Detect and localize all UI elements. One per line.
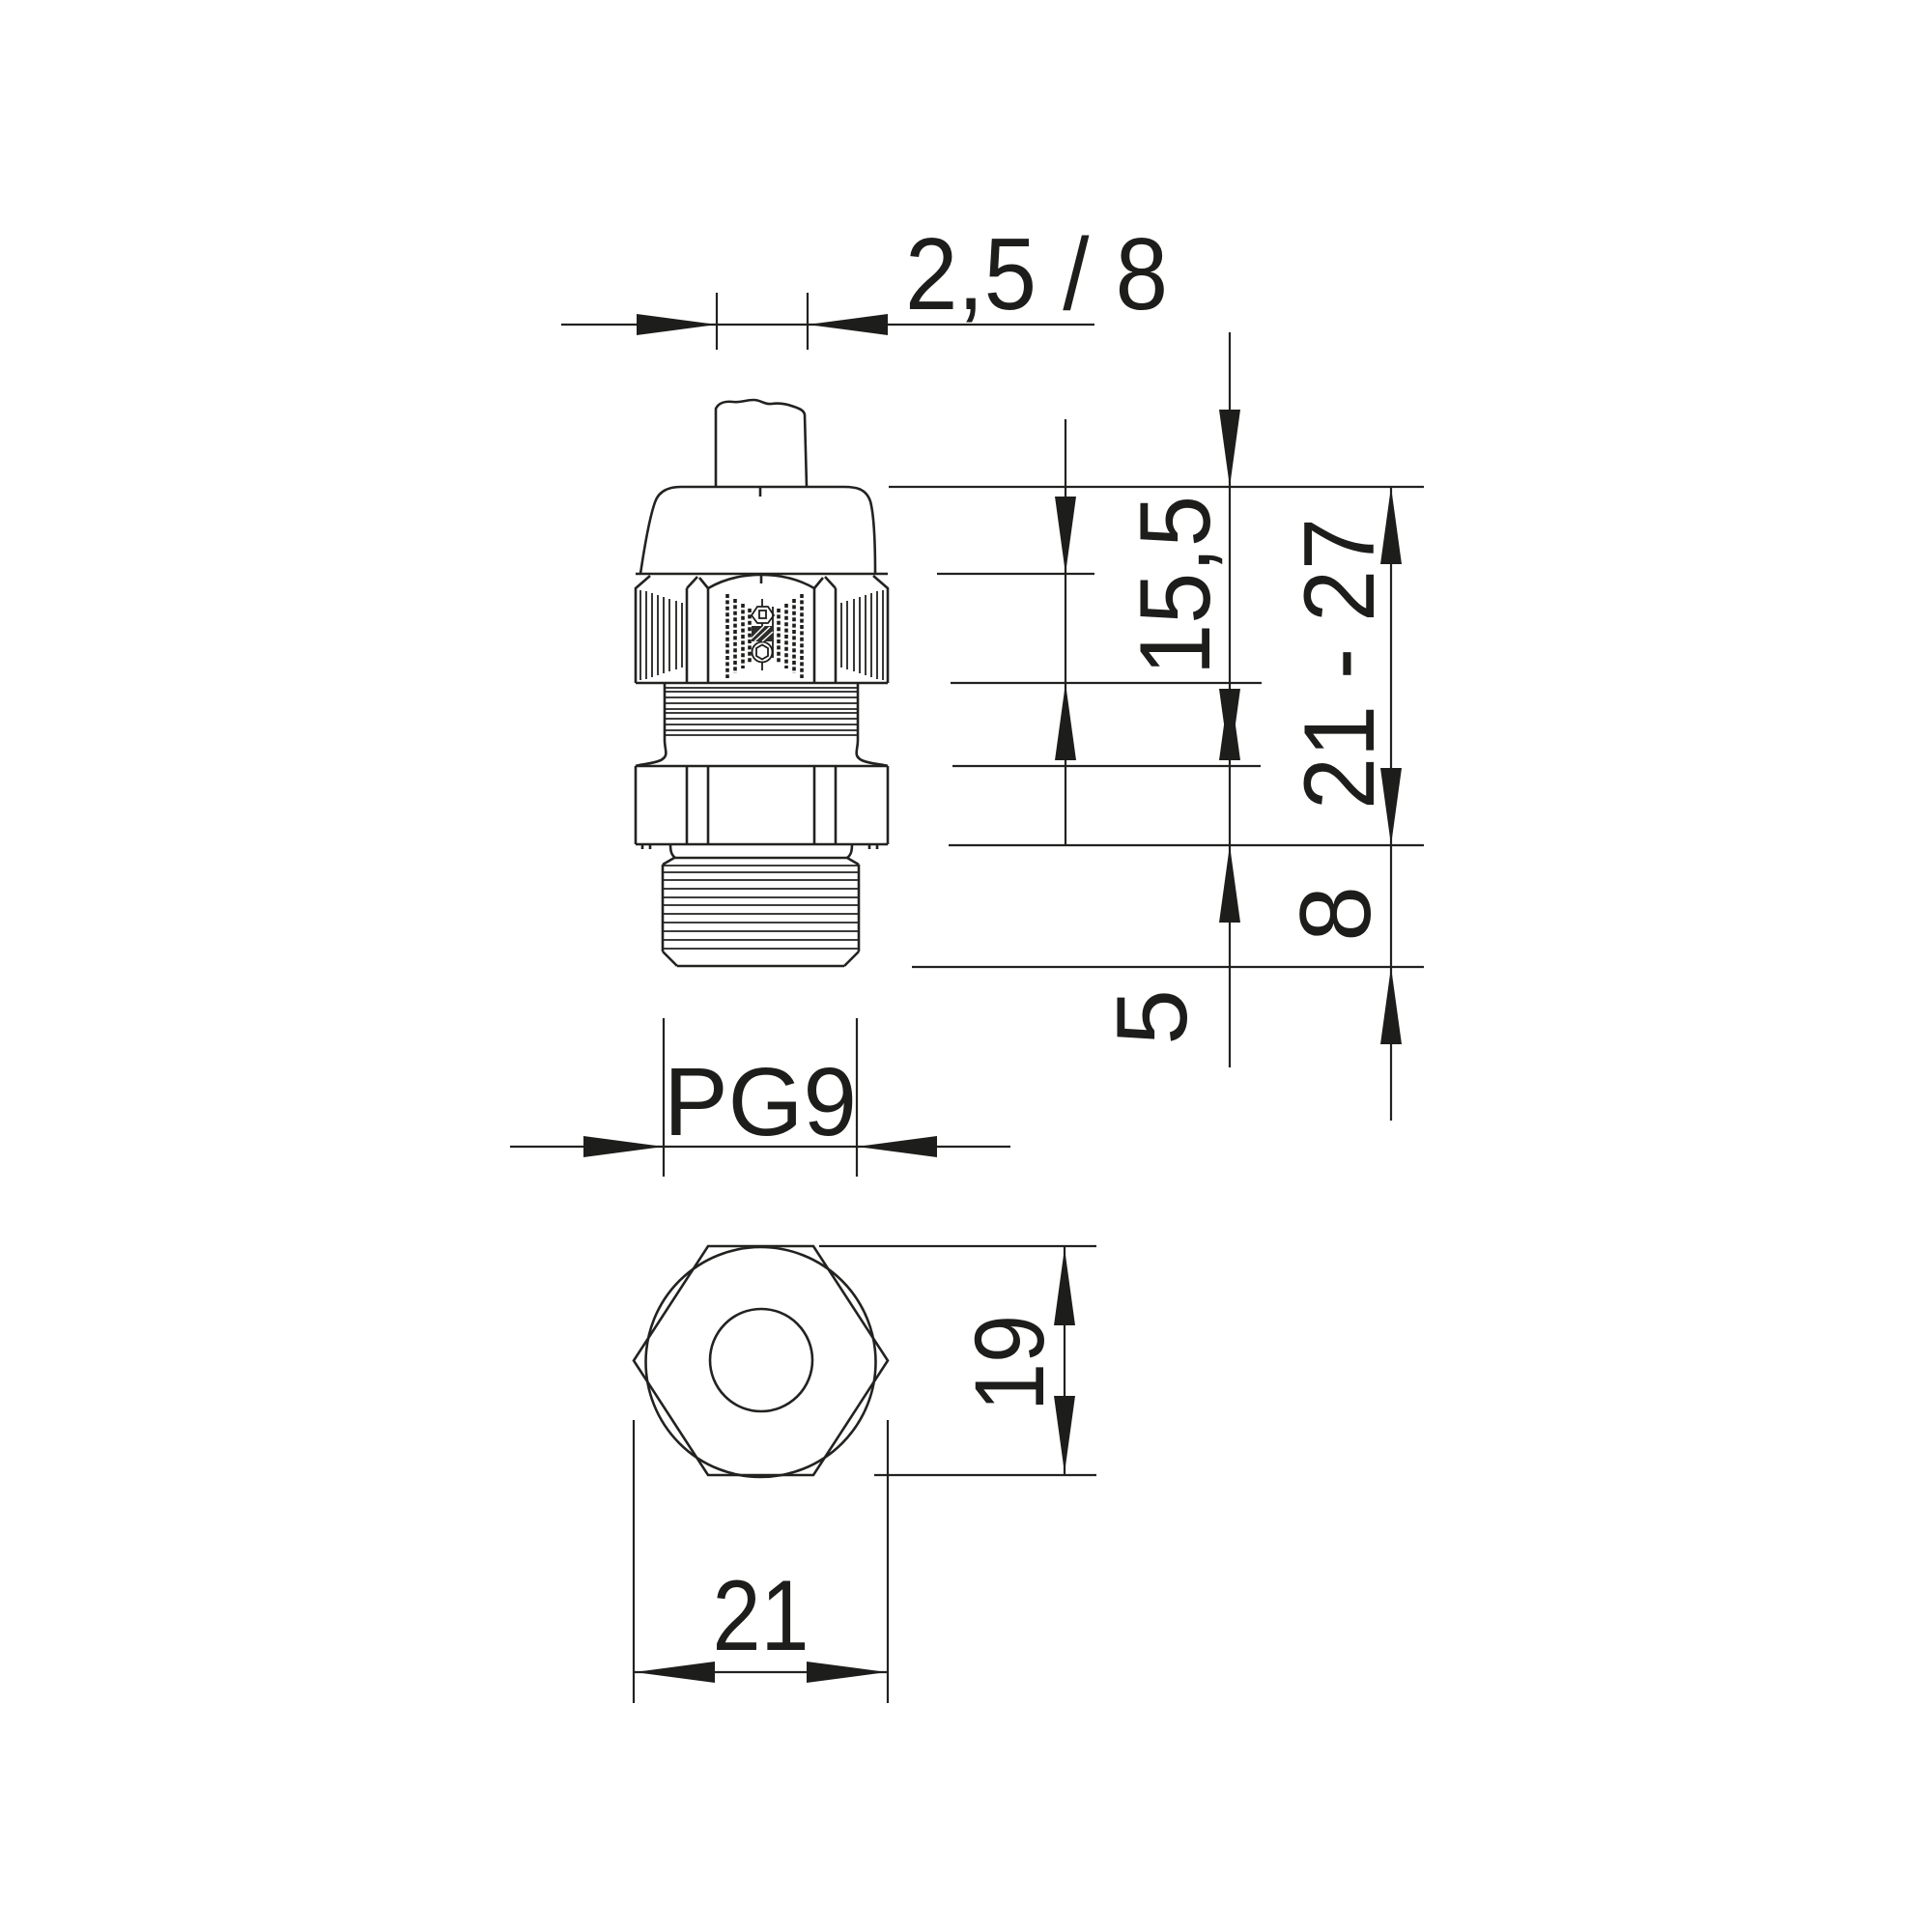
svg-text:19: 19 bbox=[954, 1315, 1065, 1411]
svg-text:15,5: 15,5 bbox=[1120, 496, 1232, 675]
svg-text:21: 21 bbox=[713, 1560, 810, 1672]
svg-text:21 - 27: 21 - 27 bbox=[1284, 518, 1396, 810]
svg-text:PG9: PG9 bbox=[664, 1048, 857, 1156]
svg-text:5: 5 bbox=[1096, 989, 1208, 1045]
svg-text:2,5 / 8: 2,5 / 8 bbox=[905, 217, 1168, 331]
svg-text:8: 8 bbox=[1280, 886, 1392, 942]
